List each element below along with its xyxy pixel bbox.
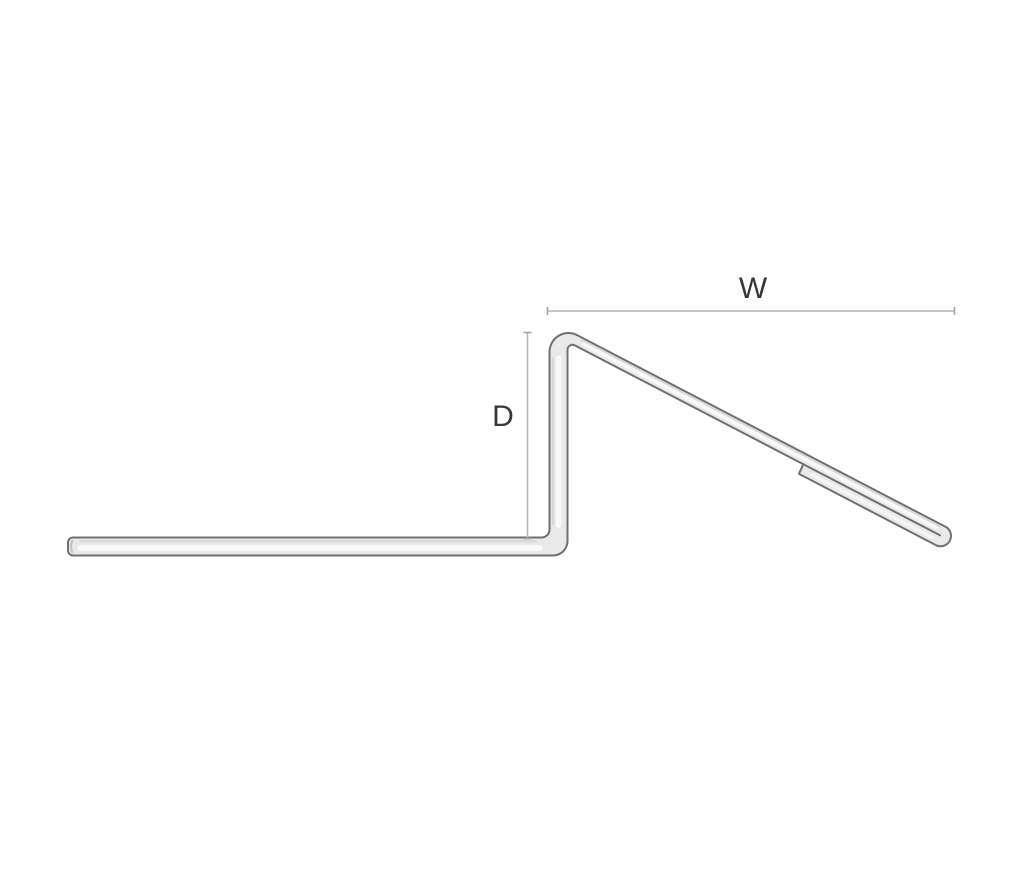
depth-label: D <box>492 400 514 433</box>
diagram-background <box>0 0 1024 873</box>
width-label: W <box>739 272 768 305</box>
profile-diagram: W D <box>0 0 1024 873</box>
profile-diagram-canvas: W D <box>0 0 1024 873</box>
